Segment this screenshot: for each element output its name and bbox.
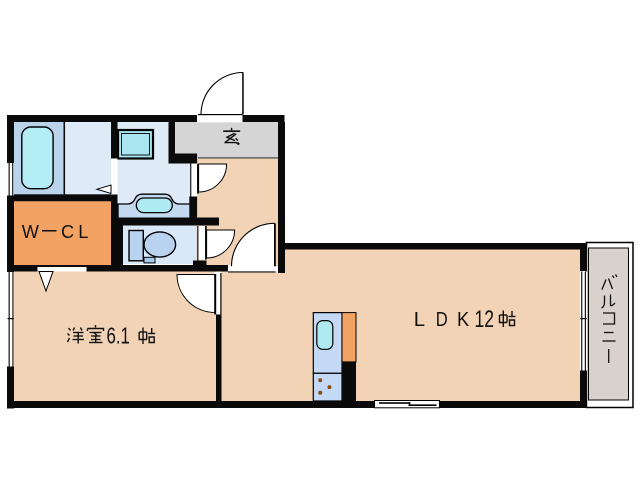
svg-text:D: D: [436, 309, 448, 331]
svg-text:12: 12: [475, 306, 495, 333]
svg-text:L: L: [78, 222, 88, 242]
svg-text:6.1: 6.1: [107, 322, 130, 348]
svg-text:K: K: [457, 309, 470, 331]
svg-text:C: C: [61, 222, 74, 242]
svg-text:L: L: [414, 309, 425, 331]
svg-text:W: W: [22, 222, 40, 242]
